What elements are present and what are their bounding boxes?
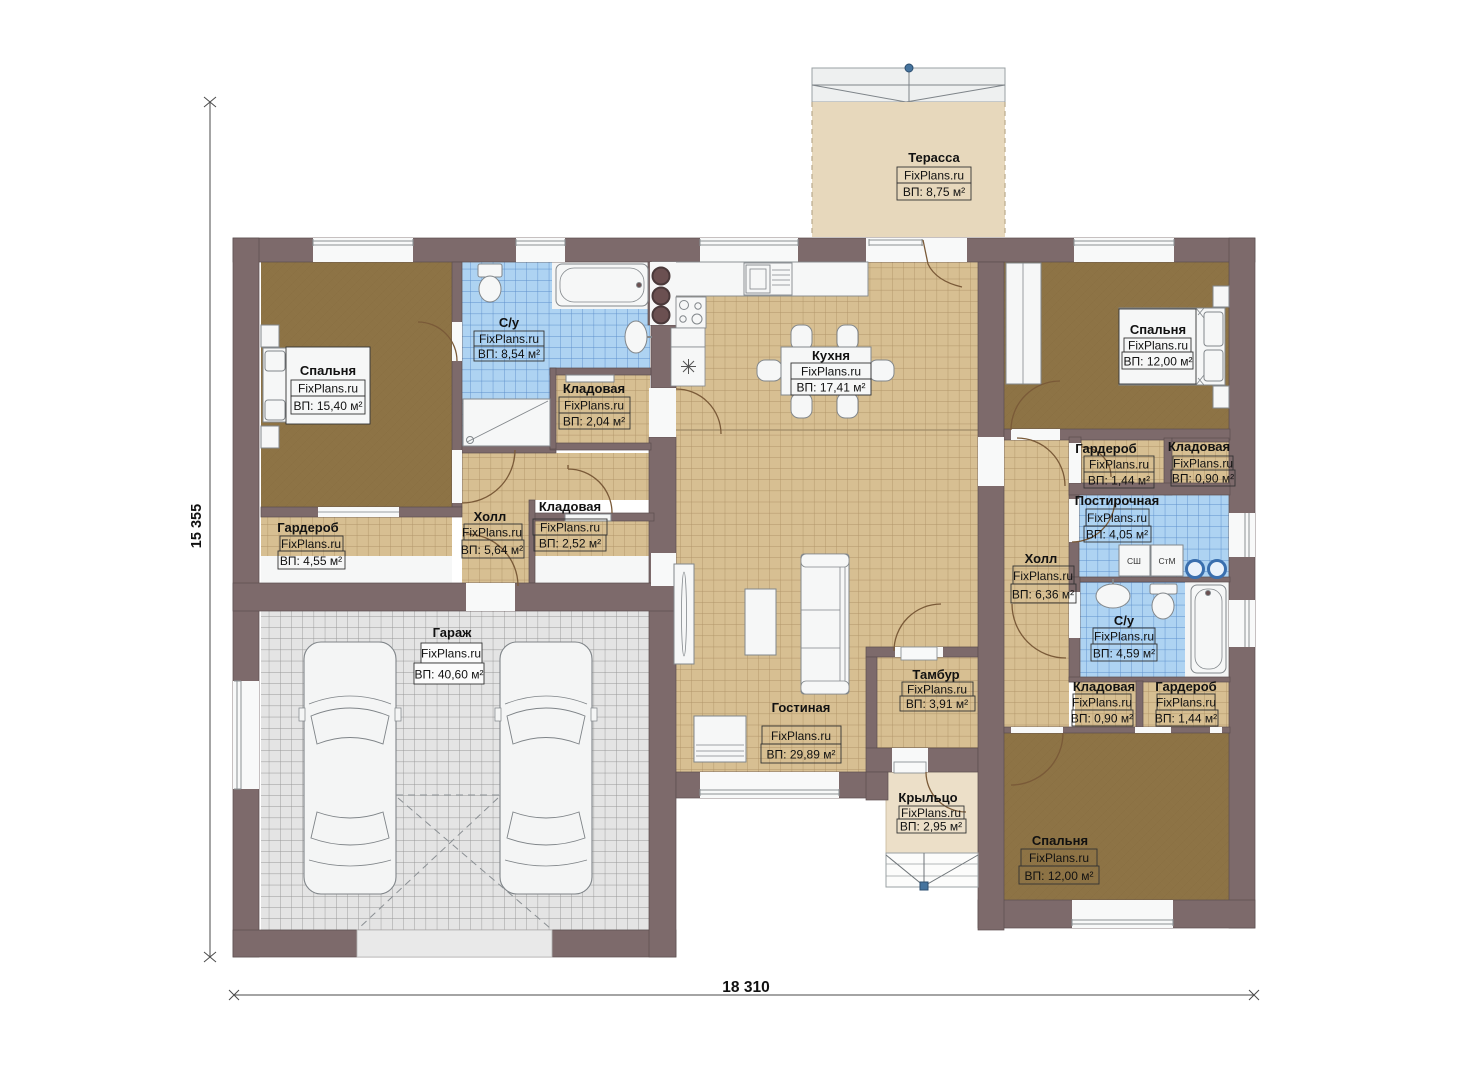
svg-text:ВП: 2,04 м²: ВП: 2,04 м² [563, 415, 625, 429]
svg-text:18 310: 18 310 [722, 979, 769, 996]
svg-text:FixPlans.ru: FixPlans.ru [1094, 630, 1154, 644]
svg-text:Кладовая: Кладовая [563, 381, 625, 396]
svg-text:СШ: СШ [1127, 556, 1141, 566]
svg-text:FixPlans.ru: FixPlans.ru [1029, 851, 1089, 865]
svg-text:ВП: 29,89 м²: ВП: 29,89 м² [767, 748, 836, 762]
svg-text:FixPlans.ru: FixPlans.ru [1013, 569, 1073, 583]
svg-text:Крыльцо: Крыльцо [898, 790, 957, 805]
svg-text:FixPlans.ru: FixPlans.ru [901, 806, 961, 820]
svg-text:FixPlans.ru: FixPlans.ru [540, 521, 600, 535]
svg-text:FixPlans.ru: FixPlans.ru [1087, 511, 1147, 525]
svg-text:15 355: 15 355 [189, 504, 205, 548]
svg-text:FixPlans.ru: FixPlans.ru [462, 526, 522, 540]
svg-text:FixPlans.ru: FixPlans.ru [421, 647, 481, 661]
svg-text:Гостиная: Гостиная [772, 700, 831, 715]
svg-text:Холл: Холл [474, 509, 507, 524]
svg-text:Спальня: Спальня [1032, 833, 1088, 848]
svg-text:ВП: 12,00 м²: ВП: 12,00 м² [1025, 869, 1094, 883]
svg-text:ВП: 3,91 м²: ВП: 3,91 м² [906, 697, 968, 711]
svg-text:FixPlans.ru: FixPlans.ru [771, 729, 831, 743]
svg-text:FixPlans.ru: FixPlans.ru [1072, 696, 1132, 710]
svg-text:Гардероб: Гардероб [1075, 441, 1136, 456]
svg-text:СтМ: СтМ [1158, 556, 1175, 566]
svg-text:Спальня: Спальня [300, 363, 356, 378]
svg-text:ВП: 0,90 м²: ВП: 0,90 м² [1071, 712, 1133, 726]
svg-text:ВП: 8,75 м²: ВП: 8,75 м² [903, 185, 965, 199]
svg-text:ВП: 1,44 м²: ВП: 1,44 м² [1155, 712, 1217, 726]
svg-text:Терасса: Терасса [908, 150, 960, 165]
svg-text:FixPlans.ru: FixPlans.ru [907, 683, 967, 697]
svg-text:ВП: 6,36 м²: ВП: 6,36 м² [1012, 588, 1074, 602]
svg-text:FixPlans.ru: FixPlans.ru [1156, 696, 1216, 710]
svg-text:Спальня: Спальня [1130, 322, 1186, 337]
svg-text:ВП: 17,41 м²: ВП: 17,41 м² [797, 381, 866, 395]
svg-text:Гардероб: Гардероб [1155, 679, 1216, 694]
svg-text:ВП: 0,90 м²: ВП: 0,90 м² [1172, 472, 1234, 486]
svg-text:Гардероб: Гардероб [277, 520, 338, 535]
svg-text:С/у: С/у [1114, 613, 1135, 628]
svg-text:Кладовая: Кладовая [539, 499, 601, 514]
svg-text:ВП: 2,52 м²: ВП: 2,52 м² [539, 537, 601, 551]
svg-text:ВП: 4,55 м²: ВП: 4,55 м² [280, 554, 342, 568]
svg-text:ВП: 1,44 м²: ВП: 1,44 м² [1088, 474, 1150, 488]
svg-text:FixPlans.ru: FixPlans.ru [298, 382, 358, 396]
svg-text:Кладовая: Кладовая [1168, 439, 1230, 454]
svg-text:FixPlans.ru: FixPlans.ru [1089, 458, 1149, 472]
svg-text:ВП: 15,40 м²: ВП: 15,40 м² [294, 399, 363, 413]
svg-text:Постирочная: Постирочная [1075, 493, 1159, 508]
svg-text:С/у: С/у [499, 315, 520, 330]
svg-text:ВП: 12,00 м²: ВП: 12,00 м² [1124, 355, 1193, 369]
svg-text:Гараж: Гараж [433, 625, 473, 640]
svg-text:Кладовая: Кладовая [1073, 679, 1135, 694]
svg-text:ВП: 40,60 м²: ВП: 40,60 м² [415, 668, 484, 682]
svg-text:Холл: Холл [1025, 551, 1058, 566]
svg-text:FixPlans.ru: FixPlans.ru [1173, 457, 1233, 471]
svg-text:FixPlans.ru: FixPlans.ru [801, 365, 861, 379]
svg-text:ВП: 5,64 м²: ВП: 5,64 м² [461, 543, 523, 557]
svg-text:Тамбур: Тамбур [912, 667, 959, 682]
svg-text:ВП: 2,95 м²: ВП: 2,95 м² [900, 820, 962, 834]
svg-text:FixPlans.ru: FixPlans.ru [904, 169, 964, 183]
svg-text:ВП: 8,54 м²: ВП: 8,54 м² [478, 347, 540, 361]
svg-text:ВП: 4,05 м²: ВП: 4,05 м² [1086, 528, 1148, 542]
svg-text:FixPlans.ru: FixPlans.ru [1128, 339, 1188, 353]
svg-text:FixPlans.ru: FixPlans.ru [479, 332, 539, 346]
svg-text:FixPlans.ru: FixPlans.ru [281, 537, 341, 551]
svg-text:ВП: 4,59 м²: ВП: 4,59 м² [1093, 647, 1155, 661]
svg-text:Кухня: Кухня [812, 348, 850, 363]
svg-text:FixPlans.ru: FixPlans.ru [564, 399, 624, 413]
